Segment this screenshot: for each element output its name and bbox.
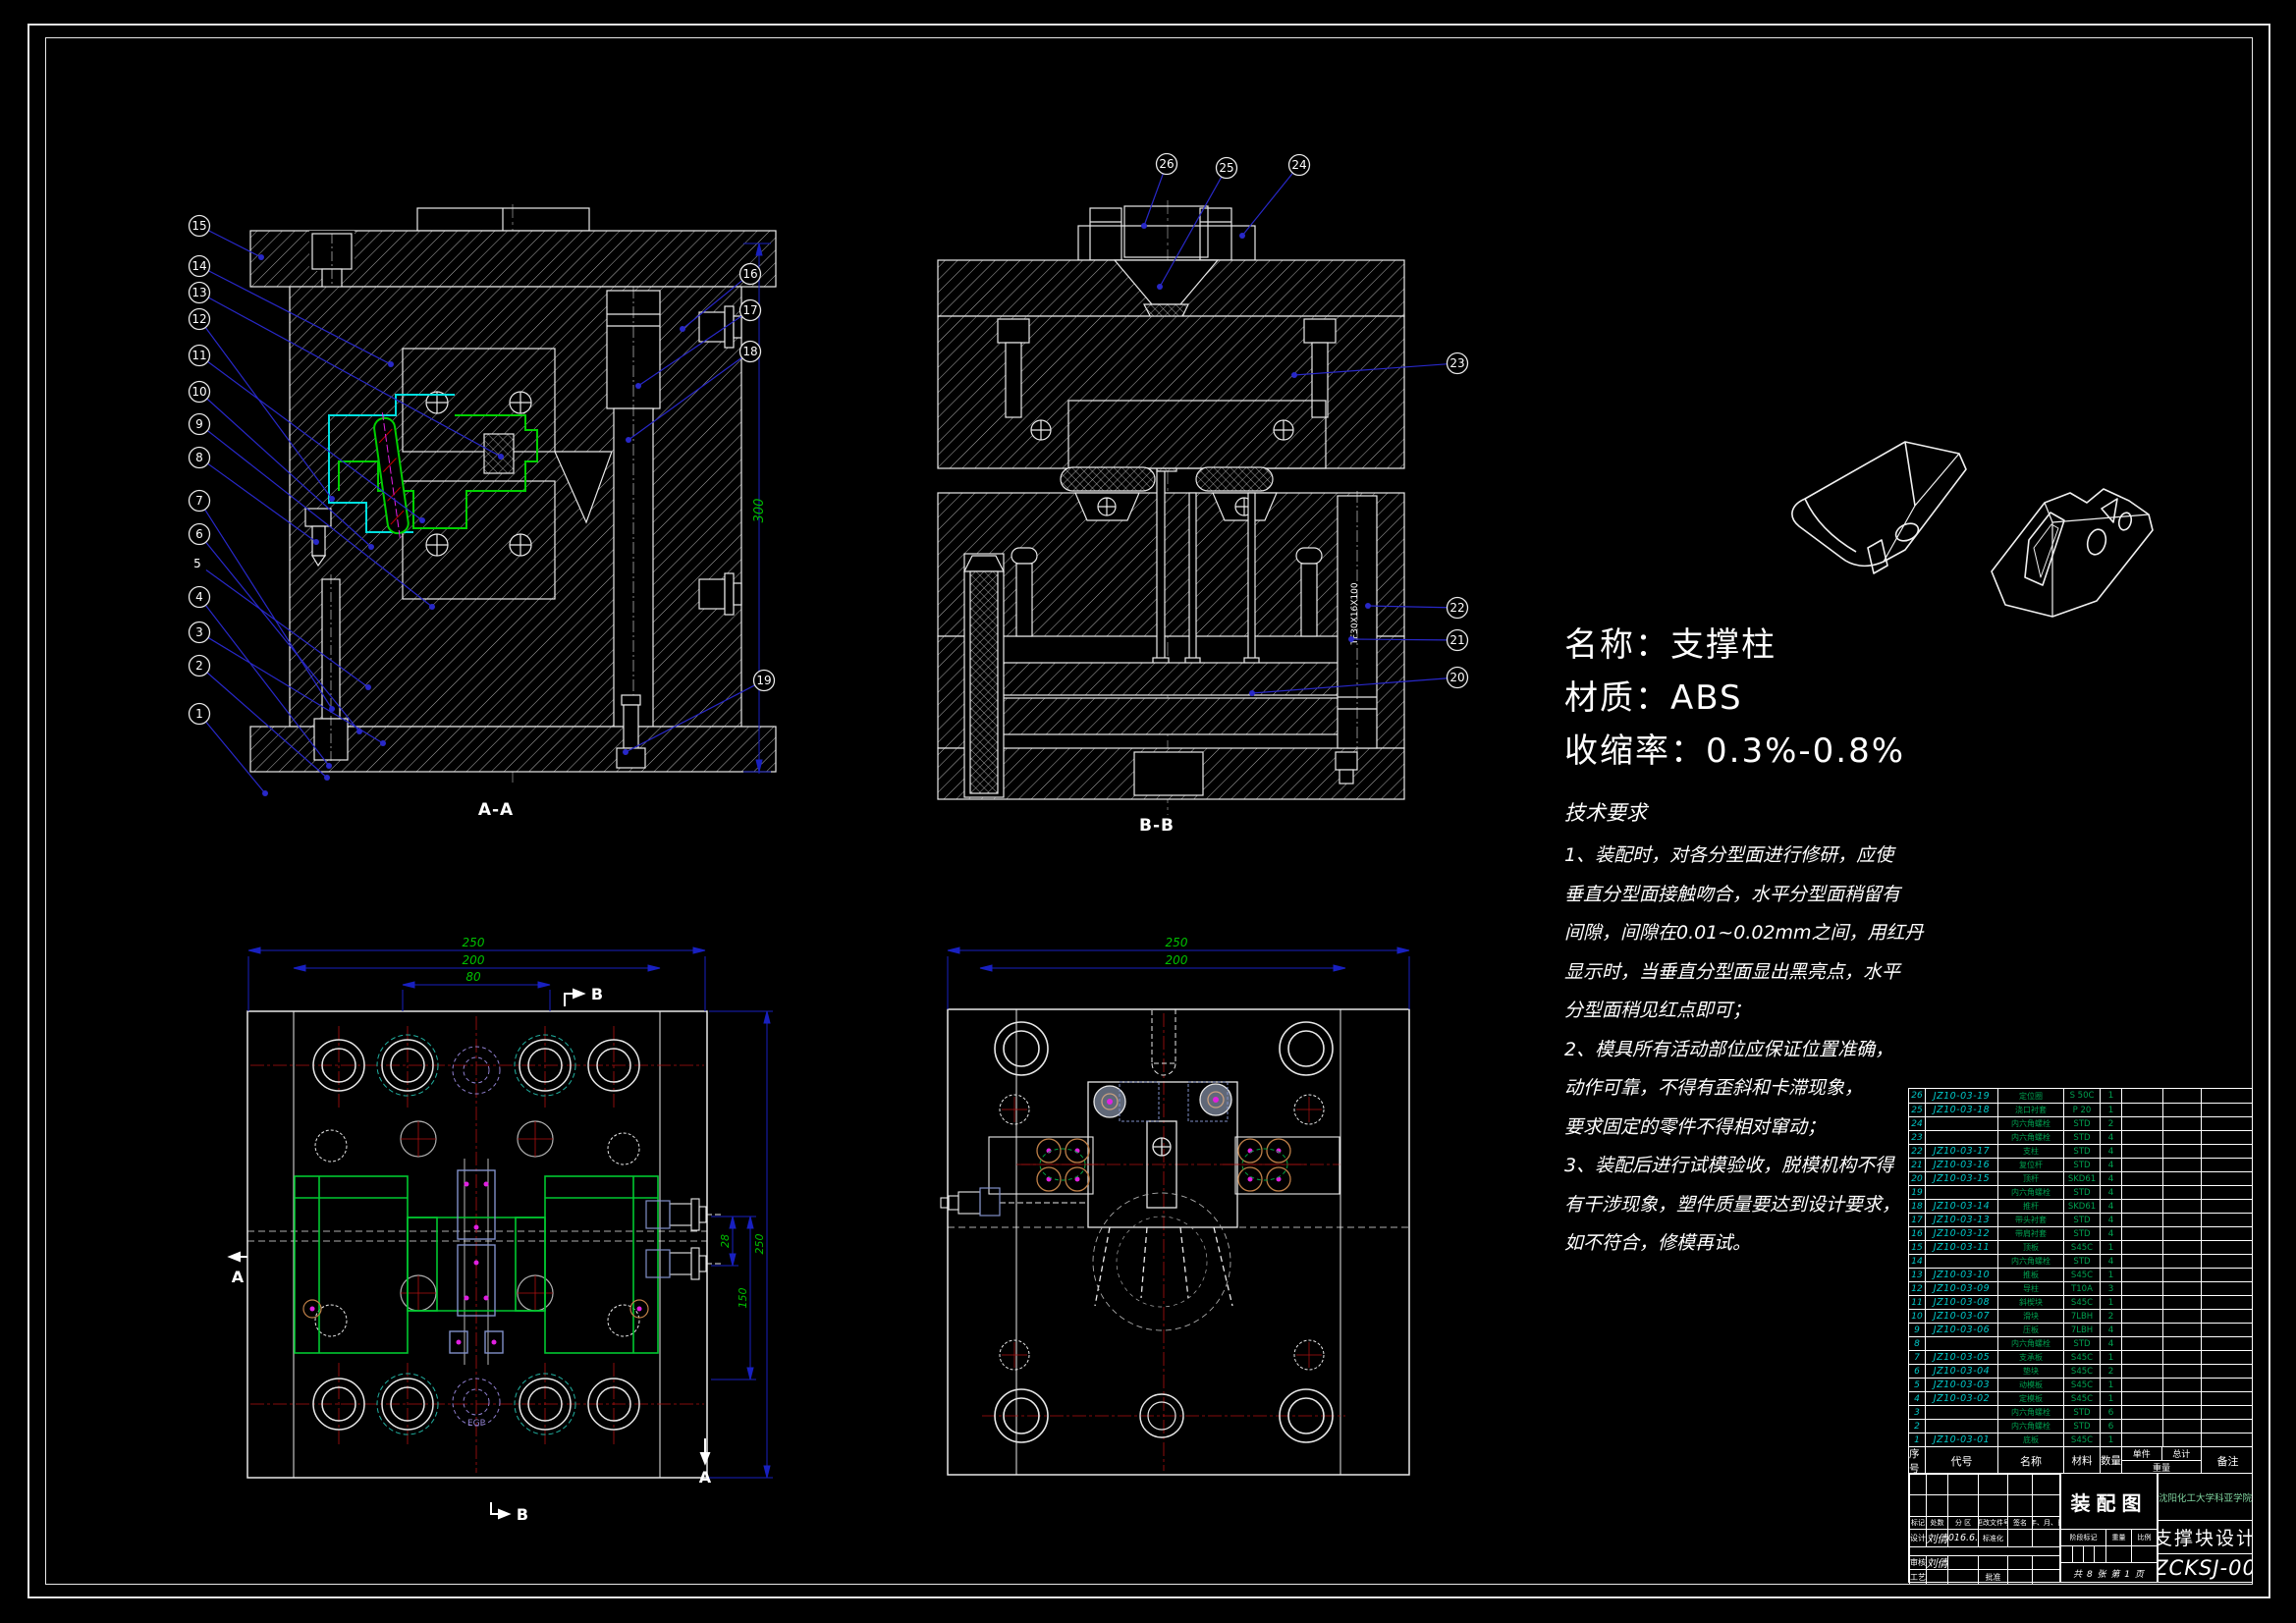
tech-requirements-title: 技术要求	[1564, 797, 1977, 827]
part-unit-weight	[2121, 1241, 2162, 1254]
part-remark	[2201, 1214, 2254, 1226]
part-unit-weight	[2121, 1089, 2162, 1103]
part-code: JZ10-03-19	[1925, 1089, 1997, 1103]
dim-300-text: 300	[752, 499, 767, 523]
part-no: 8	[1909, 1337, 1925, 1350]
part-name: 导柱	[1997, 1282, 2063, 1295]
part-unit-weight	[2121, 1200, 2162, 1213]
tech-requirements-line: 1、装配时，对各分型面进行修研，应使	[1564, 837, 1977, 876]
tech-requirements-line: 显示时，当垂直分型面显出黑亮点，水平	[1564, 953, 1977, 993]
design-signature: 刘倩	[1926, 1529, 1947, 1546]
part-remark	[2201, 1420, 2254, 1433]
part-unit-weight	[2121, 1172, 2162, 1185]
part-material: STD	[2063, 1337, 2100, 1350]
school-name: 沈阳化工大学科亚学院	[2159, 1474, 2252, 1520]
table-row: 11 JZ10-03-08 斜楔块 S45C 1	[1909, 1295, 2252, 1309]
part-remark	[2201, 1117, 2254, 1130]
part-total-weight	[2162, 1117, 2201, 1130]
table-row: 24 内六角螺栓 STD 2	[1909, 1116, 2252, 1130]
part-qty: 3	[2100, 1282, 2121, 1295]
part-remark	[2201, 1227, 2254, 1240]
part-total-weight	[2162, 1241, 2201, 1254]
part-no: 17	[1909, 1214, 1925, 1226]
section-view-bb: TF30X16X100 B-B	[913, 167, 1483, 854]
part-material: S45C	[2063, 1269, 2100, 1281]
part-code: JZ10-03-11	[1925, 1241, 1997, 1254]
parts-list-table: 26 JZ10-03-19 定位圈 S 50C 1 25 JZ10-03-18 …	[1908, 1088, 2253, 1475]
standard-label: 标准化	[1978, 1529, 2007, 1546]
part-remark	[2201, 1255, 2254, 1268]
part-material: SKD61	[2063, 1172, 2100, 1185]
part-code: JZ10-03-10	[1925, 1269, 1997, 1281]
part-unit-weight	[2121, 1282, 2162, 1295]
part-unit-weight	[2121, 1310, 2162, 1323]
part-qty: 4	[2100, 1337, 2121, 1350]
dim-80-top: 80	[465, 970, 481, 984]
part-no: 24	[1909, 1117, 1925, 1130]
part-name: 底板	[1997, 1434, 2063, 1446]
part-name: 滑块	[1997, 1310, 2063, 1323]
table-row: 15 JZ10-03-11 顶板 S45C 1	[1909, 1240, 2252, 1254]
table-row: 22 JZ10-03-17 支柱 STD 4	[1909, 1144, 2252, 1158]
part-code: JZ10-03-07	[1925, 1310, 1997, 1323]
part-remark	[2201, 1406, 2254, 1419]
part-total-weight	[2162, 1172, 2201, 1185]
part-no: 26	[1909, 1089, 1925, 1103]
table-row: 4 JZ10-03-02 定模板 S45C 1	[1909, 1391, 2252, 1405]
title-block-revision: 标记 处数 分 区 更改文件号 签名 年、月、日 设计 刘倩 2016.6.5 …	[1908, 1473, 2060, 1583]
dim-250-top-right-view: 250	[1166, 936, 1188, 949]
part-no: 19	[1909, 1186, 1925, 1199]
process-label: 工艺	[1909, 1569, 1926, 1584]
part-material: STD	[2063, 1406, 2100, 1419]
table-row: 13 JZ10-03-10 推板 S45C 1	[1909, 1268, 2252, 1281]
part-no: 2	[1909, 1420, 1925, 1433]
part-name: 顶板	[1997, 1241, 2063, 1254]
part-remark	[2201, 1365, 2254, 1378]
part-qty: 4	[2100, 1255, 2121, 1268]
part-unit-weight	[2121, 1392, 2162, 1405]
part-no: 21	[1909, 1159, 1925, 1171]
view-label-aa: A-A	[478, 800, 514, 820]
part-qty: 4	[2100, 1172, 2121, 1185]
table-row: 19 内六角螺栓 STD 4	[1909, 1185, 2252, 1199]
part-total-weight	[2162, 1296, 2201, 1309]
part-no: 20	[1909, 1172, 1925, 1185]
part-code	[1925, 1406, 1997, 1419]
part-unit-weight	[2121, 1420, 2162, 1433]
part-qty: 2	[2100, 1310, 2121, 1323]
part-code: JZ10-03-16	[1925, 1159, 1997, 1171]
part-code: JZ10-03-01	[1925, 1434, 1997, 1446]
part-code	[1925, 1186, 1997, 1199]
part-code: JZ10-03-14	[1925, 1200, 1997, 1213]
part-total-weight	[2162, 1145, 2201, 1158]
part-remark	[2201, 1145, 2254, 1158]
part-no: 5	[1909, 1379, 1925, 1391]
part-material: S45C	[2063, 1379, 2100, 1391]
part-code: JZ10-03-04	[1925, 1365, 1997, 1378]
audit-label: 审核	[1909, 1555, 1926, 1569]
part-total-weight	[2162, 1089, 2201, 1103]
part-unit-weight	[2121, 1227, 2162, 1240]
part-qty: 2	[2100, 1117, 2121, 1130]
table-row: 5 JZ10-03-03 动模板 S45C 1	[1909, 1378, 2252, 1391]
header-name: 名称	[1997, 1447, 2063, 1474]
part-material: STD	[2063, 1159, 2100, 1171]
product-info-line: 收缩率：0.3%-0.8%	[1564, 725, 1905, 778]
part-name: 推板	[1997, 1269, 2063, 1281]
part-total-weight	[2162, 1159, 2201, 1171]
pillar-size-text: TF30X16X100	[1350, 582, 1360, 645]
dim-28-right: 28	[719, 1234, 732, 1248]
part-name: 动模板	[1997, 1379, 2063, 1391]
change-file-label: 更改文件号	[1978, 1516, 2007, 1529]
part-qty: 2	[2100, 1365, 2121, 1378]
part-material: T10A	[2063, 1282, 2100, 1295]
part-total-weight	[2162, 1104, 2201, 1116]
part-unit-weight	[2121, 1255, 2162, 1268]
part-qty: 1	[2100, 1089, 2121, 1103]
part-material: S45C	[2063, 1365, 2100, 1378]
part-name: 内六角螺栓	[1997, 1131, 2063, 1144]
part-remark	[2201, 1131, 2254, 1144]
part-material: STD	[2063, 1214, 2100, 1226]
part-total-weight	[2162, 1269, 2201, 1281]
table-row: 7 JZ10-03-05 支承板 S45C 1	[1909, 1350, 2252, 1364]
part-total-weight	[2162, 1282, 2201, 1295]
dim-200-top-right-view: 200	[1166, 953, 1188, 967]
part-name: 内六角螺栓	[1997, 1337, 2063, 1350]
part-no: 9	[1909, 1324, 1925, 1336]
part-no: 4	[1909, 1392, 1925, 1405]
part-qty: 6	[2100, 1406, 2121, 1419]
part-unit-weight	[2121, 1324, 2162, 1336]
part-total-weight	[2162, 1200, 2201, 1213]
dim-250-right: 250	[753, 1234, 766, 1255]
part-no: 18	[1909, 1200, 1925, 1213]
part-total-weight	[2162, 1365, 2201, 1378]
part-remark	[2201, 1200, 2254, 1213]
part-name: 带肩衬套	[1997, 1227, 2063, 1240]
part-name: 定位圈	[1997, 1089, 2063, 1103]
part-qty: 4	[2100, 1145, 2121, 1158]
part-code: JZ10-03-05	[1925, 1351, 1997, 1364]
part-total-weight	[2162, 1255, 2201, 1268]
part-material: S45C	[2063, 1296, 2100, 1309]
part-unit-weight	[2121, 1117, 2162, 1130]
header-material: 材料	[2063, 1447, 2100, 1474]
part-no: 14	[1909, 1255, 1925, 1268]
part-unit-weight	[2121, 1434, 2162, 1446]
part-code: JZ10-03-08	[1925, 1296, 1997, 1309]
mark-label: 标记	[1909, 1516, 1926, 1529]
count-label: 处数	[1926, 1516, 1947, 1529]
weight-label: 重量	[2105, 1529, 2131, 1545]
part-remark	[2201, 1089, 2254, 1103]
part-unit-weight	[2121, 1214, 2162, 1226]
title-block-right: 沈阳化工大学科亚学院 支撑块设计 ZCKSJ-00	[2158, 1473, 2253, 1583]
part-name: 内六角螺栓	[1997, 1406, 2063, 1419]
tech-requirements-line: 2、模具所有活动部位应保证位置准确，	[1564, 1031, 1977, 1070]
tech-requirements-line: 间隙，间隙在0.01~0.02mm之间，用红丹	[1564, 914, 1977, 953]
part-qty: 1	[2100, 1269, 2121, 1281]
table-row: 18 JZ10-03-14 推杆 SKD61 4	[1909, 1199, 2252, 1213]
part-remark	[2201, 1324, 2254, 1336]
part-code: JZ10-03-02	[1925, 1392, 1997, 1405]
part-total-weight	[2162, 1406, 2201, 1419]
table-row: 23 内六角螺栓 STD 4	[1909, 1130, 2252, 1144]
header-qty: 数量	[2100, 1447, 2121, 1474]
part-qty: 4	[2100, 1186, 2121, 1199]
section-mark-a-left: A	[232, 1268, 245, 1286]
table-row: 25 JZ10-03-18 浇口衬套 P 20 1	[1909, 1103, 2252, 1116]
part-total-weight	[2162, 1420, 2201, 1433]
part-code: JZ10-03-15	[1925, 1172, 1997, 1185]
part-total-weight	[2162, 1131, 2201, 1144]
part-code: JZ10-03-03	[1925, 1379, 1997, 1391]
part-remark	[2201, 1269, 2254, 1281]
part-material: STD	[2063, 1420, 2100, 1433]
part-name: 内六角螺栓	[1997, 1186, 2063, 1199]
part-name: 内六角螺栓	[1997, 1117, 2063, 1130]
header-total: 总计	[2161, 1447, 2202, 1460]
part-no: 12	[1909, 1282, 1925, 1295]
table-row: 9 JZ10-03-06 压板 7LBH 4	[1909, 1323, 2252, 1336]
part-name: 内六角螺栓	[1997, 1420, 2063, 1433]
part-material: S45C	[2063, 1351, 2100, 1364]
part-qty: 1	[2100, 1296, 2121, 1309]
part-total-weight	[2162, 1337, 2201, 1350]
product-info-line: 名称：支撑柱	[1564, 619, 1905, 672]
table-row: 2 内六角螺栓 STD 6	[1909, 1419, 2252, 1433]
header-code: 代号	[1925, 1447, 1997, 1474]
drawing-number: ZCKSJ-00	[2159, 1553, 2252, 1582]
table-row: 21 JZ10-03-16 复位杆 STD 4	[1909, 1158, 2252, 1171]
tech-requirements-line: 垂直分型面接触吻合，水平分型面稍留有	[1564, 876, 1977, 915]
sign-label: 签名	[2007, 1516, 2032, 1529]
part-name: 复位杆	[1997, 1159, 2063, 1171]
table-row: 3 内六角螺栓 STD 6	[1909, 1405, 2252, 1419]
part-unit-weight	[2121, 1131, 2162, 1144]
header-no: 序号	[1909, 1447, 1925, 1474]
header-remark: 备注	[2201, 1447, 2254, 1474]
project-title: 支撑块设计	[2159, 1520, 2252, 1553]
part-material: SKD61	[2063, 1200, 2100, 1213]
zone-label: 分 区	[1947, 1516, 1978, 1529]
table-row: 16 JZ10-03-12 带肩衬套 STD 4	[1909, 1226, 2252, 1240]
header-unit: 单件	[2122, 1447, 2161, 1460]
part-remark	[2201, 1104, 2254, 1116]
part-material: STD	[2063, 1145, 2100, 1158]
part-name: 浇口衬套	[1997, 1104, 2063, 1116]
part-no: 15	[1909, 1241, 1925, 1254]
part-material: S 50C	[2063, 1089, 2100, 1103]
drawing-sheet: 300 A-A	[0, 0, 2296, 1623]
part-name: 压板	[1997, 1324, 2063, 1336]
approve-label: 批准	[1978, 1569, 2007, 1584]
part-code	[1925, 1131, 1997, 1144]
part-code	[1925, 1420, 1997, 1433]
part-name: 内六角螺栓	[1997, 1255, 2063, 1268]
part-qty: 1	[2100, 1351, 2121, 1364]
part-qty: 4	[2100, 1200, 2121, 1213]
audit-signature: 刘倩	[1926, 1555, 1947, 1569]
part-material: STD	[2063, 1255, 2100, 1268]
part-code: JZ10-03-12	[1925, 1227, 1997, 1240]
design-date: 2016.6.5	[1947, 1529, 1978, 1546]
part-code: JZ10-03-17	[1925, 1145, 1997, 1158]
section-mark-b-bottom: B	[517, 1505, 528, 1524]
part-remark	[2201, 1379, 2254, 1391]
part-unit-weight	[2121, 1337, 2162, 1350]
part-name: 定模板	[1997, 1392, 2063, 1405]
parts-table-header: 序号 代号 名称 材料 数量 单件 总计 重量 备注	[1909, 1446, 2252, 1474]
part-name: 顶杆	[1997, 1172, 2063, 1185]
dim-200-top: 200	[463, 953, 485, 967]
part-qty: 1	[2100, 1392, 2121, 1405]
part-name: 支承板	[1997, 1351, 2063, 1364]
part-qty: 4	[2100, 1131, 2121, 1144]
part-material: S45C	[2063, 1434, 2100, 1446]
part-no: 16	[1909, 1227, 1925, 1240]
part-unit-weight	[2121, 1296, 2162, 1309]
part-unit-weight	[2121, 1145, 2162, 1158]
sheet-count: 共 8 张 第 1 页	[2061, 1562, 2157, 1583]
part-no: 1	[1909, 1434, 1925, 1446]
part-no: 7	[1909, 1351, 1925, 1364]
plan-view-left: EGP	[226, 933, 835, 1532]
table-row: 1 JZ10-03-01 底板 S45C 1	[1909, 1433, 2252, 1446]
part-qty: 4	[2100, 1324, 2121, 1336]
part-qty: 4	[2100, 1227, 2121, 1240]
part-unit-weight	[2121, 1351, 2162, 1364]
table-row: 12 JZ10-03-09 导柱 T10A 3	[1909, 1281, 2252, 1295]
part-remark	[2201, 1296, 2254, 1309]
product-info: 名称：支撑柱材质：ABS收缩率：0.3%-0.8%	[1564, 619, 1905, 778]
part-total-weight	[2162, 1434, 2201, 1446]
section-mark-b-top: B	[591, 985, 603, 1003]
date-label: 年、月、日	[2032, 1516, 2061, 1529]
part-no: 10	[1909, 1310, 1925, 1323]
dim-150-right: 150	[737, 1288, 749, 1309]
part-material: STD	[2063, 1131, 2100, 1144]
part-qty: 6	[2100, 1420, 2121, 1433]
part-total-weight	[2162, 1379, 2201, 1391]
view-label-bb: B-B	[1139, 816, 1175, 836]
part-remark	[2201, 1434, 2254, 1446]
stage-label: 阶段标记	[2061, 1529, 2105, 1545]
table-row: 17 JZ10-03-13 带头衬套 STD 4	[1909, 1213, 2252, 1226]
part-remark	[2201, 1282, 2254, 1295]
product-info-line: 材质：ABS	[1564, 672, 1905, 725]
part-material: S45C	[2063, 1241, 2100, 1254]
part-total-weight	[2162, 1392, 2201, 1405]
part-material: S45C	[2063, 1392, 2100, 1405]
part-material: STD	[2063, 1186, 2100, 1199]
part-code	[1925, 1255, 1997, 1268]
part-remark	[2201, 1392, 2254, 1405]
part-total-weight	[2162, 1351, 2201, 1364]
part-qty: 1	[2100, 1434, 2121, 1446]
part-no: 6	[1909, 1365, 1925, 1378]
table-row: 20 JZ10-03-15 顶杆 SKD61 4	[1909, 1171, 2252, 1185]
part-no: 23	[1909, 1131, 1925, 1144]
dim-250-top: 250	[463, 936, 485, 949]
design-label: 设计	[1909, 1529, 1926, 1546]
section-view-aa: 300 A-A	[221, 167, 810, 854]
part-unit-weight	[2121, 1365, 2162, 1378]
part-qty: 4	[2100, 1214, 2121, 1226]
part-code: JZ10-03-18	[1925, 1104, 1997, 1116]
part-no: 25	[1909, 1104, 1925, 1116]
part-remark	[2201, 1186, 2254, 1199]
part-remark	[2201, 1351, 2254, 1364]
table-row: 6 JZ10-03-04 垫块 S45C 2	[1909, 1364, 2252, 1378]
part-remark	[2201, 1159, 2254, 1171]
part-total-weight	[2162, 1324, 2201, 1336]
part-remark	[2201, 1241, 2254, 1254]
part-name: 推杆	[1997, 1200, 2063, 1213]
part-material: STD	[2063, 1117, 2100, 1130]
part-remark	[2201, 1172, 2254, 1185]
part-code: JZ10-03-06	[1925, 1324, 1997, 1336]
header-weight-group: 单件 总计 重量	[2121, 1447, 2201, 1474]
table-row: 14 内六角螺栓 STD 4	[1909, 1254, 2252, 1268]
part-unit-weight	[2121, 1186, 2162, 1199]
table-row: 10 JZ10-03-07 滑块 7LBH 2	[1909, 1309, 2252, 1323]
part-name: 垫块	[1997, 1365, 2063, 1378]
part-unit-weight	[2121, 1104, 2162, 1116]
part-material: P 20	[2063, 1104, 2100, 1116]
title-block-center: 装配图 阶段标记 重量 比例 共 8 张 第 1 页	[2060, 1473, 2158, 1583]
part-material: 7LBH	[2063, 1324, 2100, 1336]
drawing-type: 装配图	[2061, 1474, 2157, 1529]
part-unit-weight	[2121, 1269, 2162, 1281]
plan-view-right: 250 200	[923, 933, 1434, 1532]
tech-requirements-line: 分型面稍见红点即可；	[1564, 992, 1977, 1031]
table-row: 26 JZ10-03-19 定位圈 S 50C 1	[1909, 1089, 2252, 1103]
part-total-weight	[2162, 1186, 2201, 1199]
part-unit-weight	[2121, 1379, 2162, 1391]
table-row: 8 内六角螺栓 STD 4	[1909, 1336, 2252, 1350]
part-no: 11	[1909, 1296, 1925, 1309]
part-remark	[2201, 1310, 2254, 1323]
part-no: 22	[1909, 1145, 1925, 1158]
part-qty: 4	[2100, 1159, 2121, 1171]
part-total-weight	[2162, 1214, 2201, 1226]
part-material: 7LBH	[2063, 1310, 2100, 1323]
part-total-weight	[2162, 1227, 2201, 1240]
part-total-weight	[2162, 1310, 2201, 1323]
part-name: 支柱	[1997, 1145, 2063, 1158]
part-qty: 1	[2100, 1241, 2121, 1254]
part-code	[1925, 1117, 1997, 1130]
part-code: JZ10-03-09	[1925, 1282, 1997, 1295]
part-code	[1925, 1337, 1997, 1350]
part-unit-weight	[2121, 1159, 2162, 1171]
part-qty: 1	[2100, 1379, 2121, 1391]
part-name: 斜楔块	[1997, 1296, 2063, 1309]
part-no: 3	[1909, 1406, 1925, 1419]
scale-label: 比例	[2131, 1529, 2157, 1545]
part-no: 13	[1909, 1269, 1925, 1281]
part-unit-weight	[2121, 1406, 2162, 1419]
part-name: 带头衬套	[1997, 1214, 2063, 1226]
egp-label: EGP	[467, 1419, 486, 1429]
part-remark	[2201, 1337, 2254, 1350]
part-code: JZ10-03-13	[1925, 1214, 1997, 1226]
